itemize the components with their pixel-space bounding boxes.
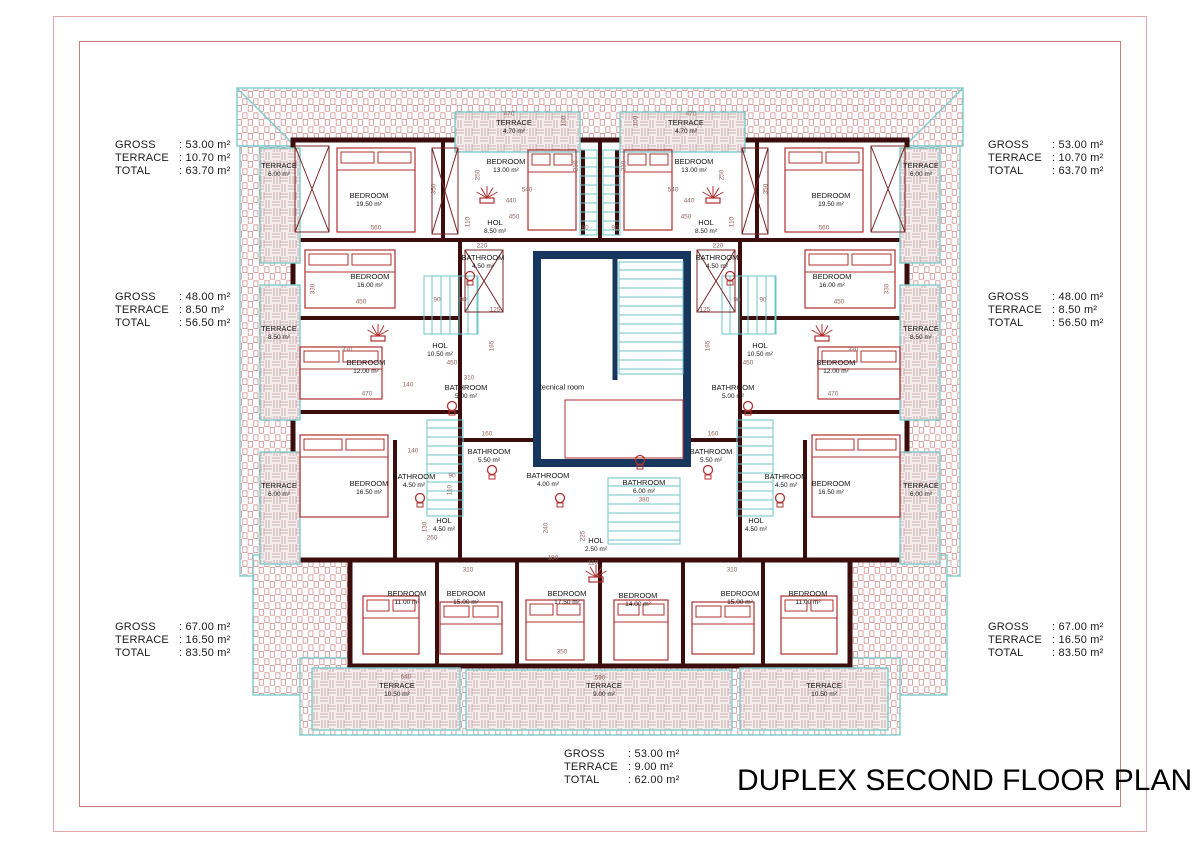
dimension-label: 90 bbox=[759, 297, 766, 304]
dimension-label: 165 bbox=[705, 341, 712, 352]
annotation-value: : 56.50 m² bbox=[1052, 317, 1104, 330]
annotation-label: TERRACE bbox=[988, 634, 1052, 647]
dimension-label: 540 bbox=[668, 187, 679, 194]
room-area: 4.00 m² bbox=[527, 481, 570, 488]
room-name: TERRACE bbox=[586, 682, 622, 691]
room-name: HOL bbox=[695, 219, 717, 228]
dimension-label: 130 bbox=[422, 522, 429, 533]
annotation-value: : 67.00 m² bbox=[179, 621, 231, 634]
annotation-label: TERRACE bbox=[115, 152, 179, 165]
room-label: HOL4.50 m² bbox=[433, 517, 455, 533]
dimension-label: 560 bbox=[371, 225, 382, 232]
dimension-label: 125 bbox=[490, 307, 501, 314]
room-area: 4.50 m² bbox=[433, 526, 455, 533]
room-label: BEDROOM15.00 m² bbox=[447, 590, 486, 606]
room-name: BEDROOM bbox=[350, 480, 389, 489]
annotation-label: TOTAL bbox=[988, 165, 1052, 178]
dimension-label: 310 bbox=[727, 567, 738, 574]
dimension-label: 450 bbox=[356, 299, 367, 306]
room-name: BEDROOM bbox=[548, 590, 587, 599]
annotation-label: GROSS bbox=[988, 139, 1052, 152]
dimension-label: 165 bbox=[489, 341, 496, 352]
room-label: TERRACE10.50 m² bbox=[379, 682, 415, 698]
room-label: BATHROOM5.50 m² bbox=[468, 448, 511, 464]
page-title: DUPLEX SECOND FLOOR PLAN bbox=[737, 764, 1192, 798]
room-area: 4.50 m² bbox=[696, 263, 739, 270]
room-area: 6.00 m² bbox=[261, 491, 297, 498]
annotation-label: GROSS bbox=[115, 139, 179, 152]
room-area: 8.50 m² bbox=[695, 228, 717, 235]
room-label: BATHROOM4.50 m² bbox=[462, 254, 505, 270]
room-label: HOL10.50 m² bbox=[427, 342, 453, 358]
dimension-label: 110 bbox=[447, 485, 454, 495]
annotation-value: : 63.70 m² bbox=[179, 165, 231, 178]
annotation-value: : 8.50 m² bbox=[179, 304, 224, 317]
annotation-value: : 67.00 m² bbox=[1052, 621, 1104, 634]
dimension-label: 110 bbox=[465, 217, 472, 227]
room-area: 5.50 m² bbox=[690, 457, 733, 464]
room-name: BEDROOM bbox=[487, 158, 526, 167]
dimension-label: 90 bbox=[611, 225, 618, 232]
room-label: TERRACE10.50 m² bbox=[806, 682, 842, 698]
room-name: BEDROOM bbox=[812, 480, 851, 489]
annotation-label: GROSS bbox=[988, 621, 1052, 634]
room-label: HOL8.50 m² bbox=[695, 219, 717, 235]
annotation-label: TERRACE bbox=[988, 304, 1052, 317]
room-label: TERRACE6.00 m² bbox=[261, 482, 297, 498]
floor-plan-sheet: TERRACE6.00 m²BEDROOM19.50 m²TERRACE4.70… bbox=[0, 0, 1200, 848]
room-area: 10.50 m² bbox=[806, 691, 842, 698]
room-name: BATHROOM bbox=[690, 448, 733, 457]
annotation-value: : 53.00 m² bbox=[1052, 139, 1104, 152]
room-label: BEDROOM14.00 m² bbox=[619, 592, 658, 608]
room-label: HOL2.50 m² bbox=[585, 537, 607, 553]
room-label: BEDROOM13.00 m² bbox=[487, 158, 526, 174]
room-name: BATHROOM bbox=[712, 384, 755, 393]
annotation-value: : 48.00 m² bbox=[1052, 291, 1104, 304]
dimension-label: 210 bbox=[621, 161, 628, 172]
room-name: TERRACE bbox=[903, 325, 939, 334]
annotation-value: : 53.00 m² bbox=[628, 748, 680, 761]
room-label: BATHROOM4.00 m² bbox=[527, 472, 570, 488]
room-label: BEDROOM17.50 m² bbox=[548, 590, 587, 606]
annotation-label: GROSS bbox=[564, 748, 628, 761]
room-label: BEDROOM13.00 m² bbox=[675, 158, 714, 174]
annotation-label: TOTAL bbox=[115, 165, 179, 178]
annotation-label: TERRACE bbox=[988, 152, 1052, 165]
room-area: 8.50 m² bbox=[261, 334, 297, 341]
dimension-label: 330 bbox=[848, 347, 859, 354]
room-area: 4.50 m² bbox=[462, 263, 505, 270]
room-name: HOL bbox=[484, 219, 506, 228]
area-annotation-bottom-center: GROSS: 53.00 m² TERRACE: 9.00 m² TOTAL: … bbox=[564, 748, 680, 787]
room-name: BATHROOM bbox=[445, 384, 488, 393]
room-name: BATHROOM bbox=[765, 473, 808, 482]
room-area: 10.50 m² bbox=[379, 691, 415, 698]
dimension-label: 470 bbox=[362, 391, 373, 398]
annotation-value: : 83.50 m² bbox=[1052, 647, 1104, 660]
area-annotation-left-top: GROSS: 53.00 m² TERRACE: 10.70 m² TOTAL:… bbox=[115, 139, 231, 178]
room-name: tecnical room bbox=[540, 384, 585, 393]
room-area: 12.00 m² bbox=[817, 368, 856, 375]
room-label: BATHROOM5.50 m² bbox=[690, 448, 733, 464]
dimension-label: 310 bbox=[463, 567, 474, 574]
room-label: TERRACE8.50 m² bbox=[261, 325, 297, 341]
room-area: 4.50 m² bbox=[745, 526, 767, 533]
room-name: HOL bbox=[427, 342, 453, 351]
room-area: 8.50 m² bbox=[903, 334, 939, 341]
room-label: BEDROOM16.00 m² bbox=[813, 273, 852, 289]
room-area: 6.00 m² bbox=[261, 171, 297, 178]
room-label: BATHROOM4.50 m² bbox=[696, 254, 739, 270]
room-name: HOL bbox=[745, 517, 767, 526]
room-area: 15.00 m² bbox=[721, 599, 760, 606]
annotation-label: TOTAL bbox=[988, 647, 1052, 660]
room-name: HOL bbox=[433, 517, 455, 526]
dimension-label: 125 bbox=[700, 307, 711, 314]
dimension-label: 110 bbox=[729, 217, 736, 227]
room-name: BATHROOM bbox=[462, 254, 505, 263]
dimension-label: 440 bbox=[684, 198, 695, 205]
annotation-value: : 16.50 m² bbox=[179, 634, 231, 647]
dimension-label: 560 bbox=[819, 225, 830, 232]
room-label: TERRACE8.50 m² bbox=[903, 325, 939, 341]
dimension-label: 540 bbox=[522, 187, 533, 194]
room-area: 5.00 m² bbox=[712, 393, 755, 400]
annotation-value: : 53.00 m² bbox=[179, 139, 231, 152]
room-name: BEDROOM bbox=[812, 192, 851, 201]
room-area: 4.70 m² bbox=[668, 128, 704, 135]
dimension-label: 90 bbox=[733, 297, 740, 304]
room-name: BEDROOM bbox=[347, 359, 386, 368]
room-label: HOL10.50 m² bbox=[747, 342, 773, 358]
dimension-label: 240 bbox=[543, 523, 550, 534]
room-area: 6.00 m² bbox=[903, 491, 939, 498]
room-name: BEDROOM bbox=[447, 590, 486, 599]
room-area: 5.00 m² bbox=[445, 393, 488, 400]
room-area: 10.50 m² bbox=[747, 351, 773, 358]
room-label: BEDROOM11.00 m² bbox=[789, 590, 828, 606]
dimension-label: 310 bbox=[464, 375, 475, 382]
annotation-label: TOTAL bbox=[988, 317, 1052, 330]
room-label: tecnical room bbox=[540, 384, 585, 393]
dimension-label: 90 bbox=[433, 297, 440, 304]
room-label: BEDROOM16.50 m² bbox=[350, 480, 389, 496]
room-area: 11.00 m² bbox=[789, 599, 828, 606]
dimension-label: 450 bbox=[447, 360, 458, 367]
room-label: TERRACE9.00 m² bbox=[586, 682, 622, 698]
dimension-label: 450 bbox=[509, 214, 520, 221]
annotation-value: : 10.70 m² bbox=[1052, 152, 1104, 165]
dimension-label: 260 bbox=[427, 535, 438, 542]
room-name: TERRACE bbox=[261, 325, 297, 334]
room-name: TERRACE bbox=[806, 682, 842, 691]
core-technical-room bbox=[537, 255, 687, 463]
room-label: BEDROOM15.00 m² bbox=[721, 590, 760, 606]
annotation-value: : 62.00 m² bbox=[628, 774, 680, 787]
room-name: TERRACE bbox=[261, 162, 297, 171]
room-area: 16.50 m² bbox=[812, 489, 851, 496]
room-area: 15.00 m² bbox=[447, 599, 486, 606]
dimension-label: 330 bbox=[342, 347, 353, 354]
room-area: 9.00 m² bbox=[586, 691, 622, 698]
room-name: BEDROOM bbox=[817, 359, 856, 368]
room-label: BATHROOM4.50 m² bbox=[765, 473, 808, 489]
annotation-label: TERRACE bbox=[564, 761, 628, 774]
room-area: 14.00 m² bbox=[619, 601, 658, 608]
room-name: BEDROOM bbox=[721, 590, 760, 599]
area-annotation-left-bottom: GROSS: 67.00 m² TERRACE: 16.50 m² TOTAL:… bbox=[115, 621, 231, 660]
room-label: TERRACE6.00 m² bbox=[261, 162, 297, 178]
annotation-label: TOTAL bbox=[564, 774, 628, 787]
room-area: 6.00 m² bbox=[623, 488, 666, 495]
room-label: HOL8.50 m² bbox=[484, 219, 506, 235]
room-name: HOL bbox=[585, 537, 607, 546]
dimension-label: 350 bbox=[557, 649, 568, 656]
annotation-value: : 83.50 m² bbox=[179, 647, 231, 660]
room-label: BATHROOM6.00 m² bbox=[623, 479, 666, 495]
room-area: 19.50 m² bbox=[812, 201, 851, 208]
room-area: 16.00 m² bbox=[351, 282, 390, 289]
annotation-value: : 8.50 m² bbox=[1052, 304, 1097, 317]
dimension-label: 470 bbox=[828, 391, 839, 398]
annotation-label: GROSS bbox=[988, 291, 1052, 304]
room-label: BEDROOM16.50 m² bbox=[812, 480, 851, 496]
room-name: TERRACE bbox=[903, 482, 939, 491]
room-area: 12.00 m² bbox=[347, 368, 386, 375]
room-label: BATHROOM5.00 m² bbox=[445, 384, 488, 400]
room-area: 6.00 m² bbox=[903, 171, 939, 178]
room-label: BEDROOM12.00 m² bbox=[817, 359, 856, 375]
dimension-label: 250 bbox=[475, 170, 482, 181]
floor-plan-canvas bbox=[0, 0, 1200, 848]
room-label: TERRACE6.00 m² bbox=[903, 482, 939, 498]
room-name: BEDROOM bbox=[350, 192, 389, 201]
room-name: BEDROOM bbox=[619, 592, 658, 601]
room-name: TERRACE bbox=[261, 482, 297, 491]
dimension-label: 470 bbox=[504, 111, 515, 118]
dimension-label: 220 bbox=[713, 243, 724, 250]
annotation-label: TOTAL bbox=[115, 317, 179, 330]
dimension-label: 350 bbox=[763, 184, 770, 195]
dimension-label: 450 bbox=[681, 214, 692, 221]
annotation-label: GROSS bbox=[115, 621, 179, 634]
room-area: 19.50 m² bbox=[350, 201, 389, 208]
dimension-label: 100 bbox=[561, 116, 568, 127]
area-annotation-right-top: GROSS: 53.00 m² TERRACE: 10.70 m² TOTAL:… bbox=[988, 139, 1104, 178]
dimension-label: 90 bbox=[459, 297, 466, 304]
annotation-value: : 16.50 m² bbox=[1052, 634, 1104, 647]
dimension-label: 90 bbox=[581, 225, 588, 232]
room-area: 17.50 m² bbox=[548, 599, 587, 606]
room-area: 13.00 m² bbox=[487, 167, 526, 174]
room-name: BATHROOM bbox=[696, 254, 739, 263]
dimension-label: 140 bbox=[403, 382, 414, 389]
dimension-label: 440 bbox=[506, 198, 517, 205]
annotation-value: : 63.70 m² bbox=[1052, 165, 1104, 178]
room-name: BEDROOM bbox=[351, 273, 390, 282]
dimension-label: 330 bbox=[310, 284, 317, 295]
room-area: 4.50 m² bbox=[765, 482, 808, 489]
room-name: BATHROOM bbox=[393, 473, 436, 482]
room-label: BATHROOM4.50 m² bbox=[393, 473, 436, 489]
room-label: TERRACE4.70 m² bbox=[496, 119, 532, 135]
room-area: 10.50 m² bbox=[427, 351, 453, 358]
room-area: 13.00 m² bbox=[675, 167, 714, 174]
dimension-label: 640 bbox=[401, 674, 412, 681]
room-name: TERRACE bbox=[496, 119, 532, 128]
room-area: 16.50 m² bbox=[350, 489, 389, 496]
dimension-label: 450 bbox=[743, 360, 754, 367]
dimension-label: 470 bbox=[686, 111, 697, 118]
dimension-label: 110 bbox=[588, 560, 598, 567]
room-label: BEDROOM11.00 m² bbox=[388, 590, 427, 606]
room-area: 11.00 m² bbox=[388, 599, 427, 606]
annotation-value: : 10.70 m² bbox=[179, 152, 231, 165]
dimension-label: 100 bbox=[633, 116, 640, 127]
room-label: BEDROOM16.00 m² bbox=[351, 273, 390, 289]
annotation-value: : 56.50 m² bbox=[179, 317, 231, 330]
dimension-label: 160 bbox=[482, 431, 493, 438]
dimension-label: 220 bbox=[477, 243, 488, 250]
annotation-label: TOTAL bbox=[115, 647, 179, 660]
dimension-label: 210 bbox=[573, 161, 580, 172]
room-area: 16.00 m² bbox=[813, 282, 852, 289]
room-area: 8.50 m² bbox=[484, 228, 506, 235]
room-area: 4.70 m² bbox=[496, 128, 532, 135]
dimension-label: 90 bbox=[448, 473, 455, 480]
dimension-label: 380 bbox=[639, 497, 650, 504]
room-name: TERRACE bbox=[903, 162, 939, 171]
dimension-label: 350 bbox=[431, 184, 438, 195]
room-area: 2.50 m² bbox=[585, 546, 607, 553]
dimension-label: 140 bbox=[408, 448, 419, 455]
annotation-label: GROSS bbox=[115, 291, 179, 304]
room-label: TERRACE6.00 m² bbox=[903, 162, 939, 178]
annotation-value: : 9.00 m² bbox=[628, 761, 673, 774]
room-label: BATHROOM5.00 m² bbox=[712, 384, 755, 400]
room-name: TERRACE bbox=[379, 682, 415, 691]
room-name: BATHROOM bbox=[468, 448, 511, 457]
dimension-label: 450 bbox=[834, 299, 845, 306]
room-label: BEDROOM19.50 m² bbox=[812, 192, 851, 208]
area-annotation-right-middle: GROSS: 48.00 m² TERRACE: 8.50 m² TOTAL: … bbox=[988, 291, 1104, 330]
dimension-label: 330 bbox=[884, 284, 891, 295]
room-label: BEDROOM19.50 m² bbox=[350, 192, 389, 208]
room-area: 5.50 m² bbox=[468, 457, 511, 464]
room-area: 4.50 m² bbox=[393, 482, 436, 489]
annotation-label: TERRACE bbox=[115, 634, 179, 647]
annotation-label: TERRACE bbox=[115, 304, 179, 317]
room-label: TERRACE4.70 m² bbox=[668, 119, 704, 135]
area-annotation-left-middle: GROSS: 48.00 m² TERRACE: 8.50 m² TOTAL: … bbox=[115, 291, 231, 330]
annotation-value: : 48.00 m² bbox=[179, 291, 231, 304]
dimension-label: 250 bbox=[719, 170, 726, 181]
room-name: BEDROOM bbox=[388, 590, 427, 599]
room-name: BEDROOM bbox=[675, 158, 714, 167]
room-label: HOL4.50 m² bbox=[745, 517, 767, 533]
dimension-label: 225 bbox=[580, 531, 587, 542]
dimension-label: 160 bbox=[708, 431, 719, 438]
room-name: TERRACE bbox=[668, 119, 704, 128]
dimension-label: 590 bbox=[595, 675, 606, 682]
room-name: BEDROOM bbox=[813, 273, 852, 282]
room-name: BATHROOM bbox=[527, 472, 570, 481]
room-name: HOL bbox=[747, 342, 773, 351]
room-name: BATHROOM bbox=[623, 479, 666, 488]
area-annotation-right-bottom: GROSS: 67.00 m² TERRACE: 16.50 m² TOTAL:… bbox=[988, 621, 1104, 660]
room-name: BEDROOM bbox=[789, 590, 828, 599]
room-label: BEDROOM12.00 m² bbox=[347, 359, 386, 375]
dimension-label: 180 bbox=[548, 555, 559, 562]
